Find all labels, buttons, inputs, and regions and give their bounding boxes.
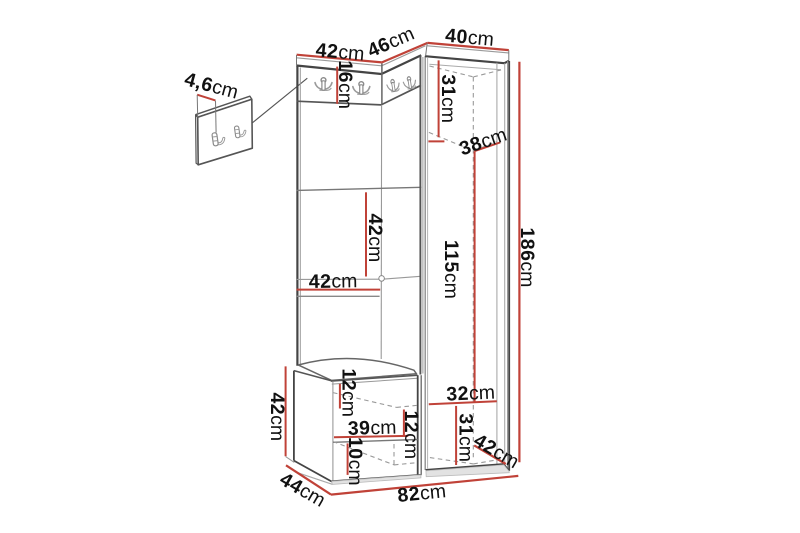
- svg-text:31cm: 31cm: [437, 74, 459, 123]
- svg-text:16cm: 16cm: [334, 60, 356, 109]
- svg-text:12cm: 12cm: [337, 368, 359, 417]
- svg-text:10cm: 10cm: [344, 437, 366, 486]
- svg-text:186cm: 186cm: [516, 227, 538, 287]
- svg-text:42cm: 42cm: [266, 392, 288, 441]
- svg-text:115cm: 115cm: [440, 240, 462, 299]
- svg-text:31cm: 31cm: [454, 413, 476, 462]
- svg-text:42cm: 42cm: [364, 214, 386, 263]
- svg-text:42cm: 42cm: [309, 270, 358, 293]
- svg-text:12cm: 12cm: [400, 410, 422, 459]
- svg-text:40cm: 40cm: [444, 25, 494, 51]
- svg-text:32cm: 32cm: [446, 382, 496, 406]
